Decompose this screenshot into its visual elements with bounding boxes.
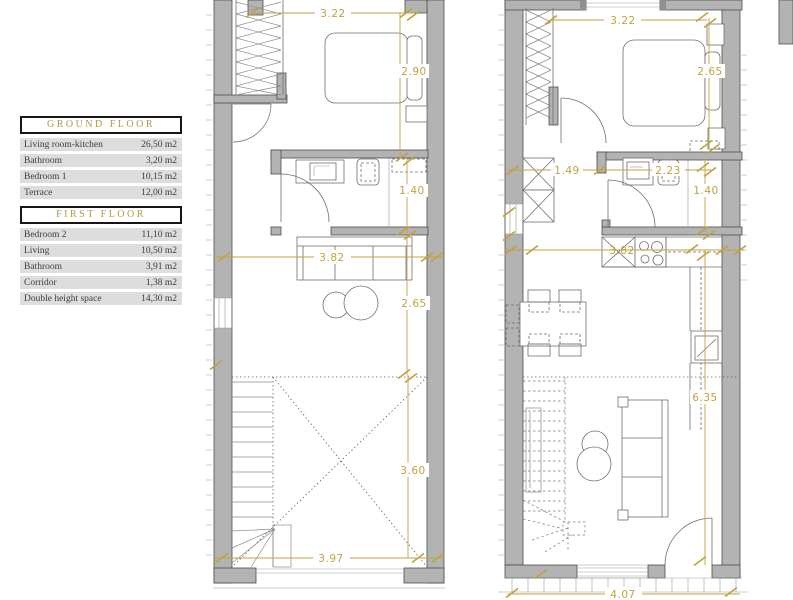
plans-drawing: 3.22 2.90 1.40 2.65 3.60 3.82 <box>0 0 793 600</box>
ground-floor-plan: 3.22 2.65 1.49 2.23 1.40 3.82 <box>498 0 793 600</box>
dim-bottom-width: 3.97 <box>318 553 343 565</box>
dim-bathroom-depth: 1.40 <box>399 185 424 197</box>
dim-bathroom-width: 2.23 <box>655 165 680 177</box>
adjacent-building <box>779 0 793 44</box>
dim-void-depth: 3.60 <box>400 465 425 477</box>
door-arc <box>561 98 606 143</box>
bed <box>623 24 725 149</box>
floor-plan-sheet: GROUND FLOOR Living room-kitchen 26,50 m… <box>0 0 793 600</box>
dim-living-width: 3.82 <box>319 252 344 264</box>
stove <box>635 237 666 267</box>
dim-bedroom-depth: 2.65 <box>697 66 722 78</box>
dim-top-width: 3.22 <box>610 15 635 27</box>
dim-bathroom-depth: 1.40 <box>693 185 718 197</box>
nightstand <box>406 106 427 122</box>
window <box>214 298 232 328</box>
dim-hall-width: 1.49 <box>554 165 579 177</box>
first-floor-plan: 3.22 2.90 1.40 2.65 3.60 3.82 <box>206 0 445 588</box>
dim-living-depth: 2.65 <box>401 298 426 310</box>
dim-living-depth: 6.35 <box>692 392 717 404</box>
nightstand <box>707 24 724 45</box>
dim-kitchen-width: 3.82 <box>609 245 634 257</box>
survey-ticks <box>206 15 212 555</box>
staircase-dashed <box>523 377 585 552</box>
sofa <box>618 397 668 520</box>
coffee-tables <box>323 286 378 320</box>
dim-top-width: 3.22 <box>320 8 345 20</box>
pillow <box>705 52 720 110</box>
wardrobe <box>523 158 554 222</box>
dim-terrace-width: 4.07 <box>610 589 635 600</box>
door-arc <box>608 180 655 227</box>
dim-bedroom-depth: 2.90 <box>401 66 426 78</box>
window <box>577 565 648 578</box>
coffee-tables <box>577 431 611 481</box>
survey-ticks <box>498 15 504 555</box>
door-arc <box>233 104 271 142</box>
staircase-lower <box>232 382 291 567</box>
